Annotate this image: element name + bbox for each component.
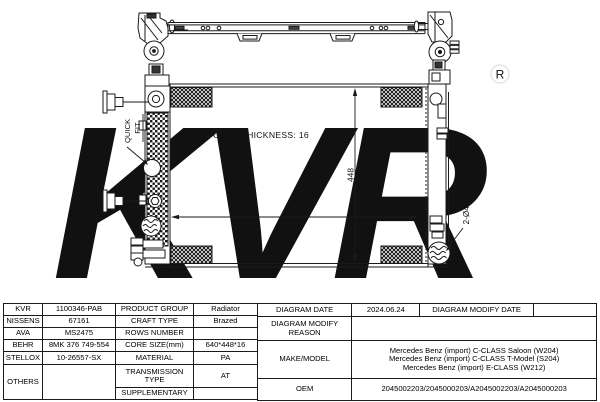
table-row: OEM 2045002203/2045000203/A2045002203/A2…: [258, 379, 597, 401]
left-drain-port: [141, 216, 161, 236]
svg-text:640: 640: [288, 205, 302, 215]
brand-cell: OTHERS: [4, 365, 43, 400]
attr-label-cell: SUPPLEMENTARY: [116, 388, 194, 400]
attr-label-cell: CORE SIZE(mm): [116, 340, 194, 352]
table-row: MAKE/MODEL Mercedes Benz (import) C-CLAS…: [258, 341, 597, 379]
oem-label: OEM: [258, 379, 352, 401]
part-number-cell: 1100346-PAB: [43, 304, 116, 316]
top-view-right-bracket: [414, 12, 459, 63]
svg-text:R: R: [496, 68, 505, 82]
watermark-text: KVR: [52, 82, 487, 302]
top-view-left-bracket: [138, 13, 188, 61]
make-model-label: MAKE/MODEL: [258, 341, 352, 379]
part-number-cell: 67161: [43, 316, 116, 328]
make-model-value: Mercedes Benz (import) C-CLASS Saloon (W…: [352, 341, 597, 379]
radiator-top-view: [138, 12, 459, 63]
brand-cell: AVA: [4, 328, 43, 340]
table-row: NISSENS 67161 CRAFT TYPE Brazed: [4, 316, 258, 328]
core-thickness-label: CORE THICKNESS: 16: [213, 130, 309, 140]
attr-value-cell: [194, 328, 258, 340]
diagram-modify-date-value: [533, 304, 596, 317]
part-number-cell: [43, 365, 116, 400]
table-row: OTHERS TRANSMISSION TYPE AT: [4, 365, 258, 388]
attr-value-cell: PA: [194, 352, 258, 365]
diagram-date-label: DIAGRAM DATE: [258, 304, 352, 317]
svg-text:2-Ø46: 2-Ø46: [462, 201, 471, 224]
attr-label-cell: TRANSMISSION TYPE: [116, 365, 194, 388]
radiator-technical-drawing: KVR R: [0, 0, 600, 302]
attr-label-cell: PRODUCT GROUP: [116, 304, 194, 316]
table-row: DIAGRAM DATE 2024.06.24 DIAGRAM MODIFY D…: [258, 304, 597, 317]
attr-value-cell: 640*448*16: [194, 340, 258, 352]
attr-label-cell: ROWS NUMBER: [116, 328, 194, 340]
spec-table: KVR 1100346-PAB PRODUCT GROUP Radiator N…: [3, 303, 597, 400]
table-row: BEHR 8MK 376 749-554 CORE SIZE(mm) 640*4…: [4, 340, 258, 352]
radiator-spec-sheet: { "watermark": { "brand": "KVR", "regist…: [0, 0, 600, 402]
brand-cell: KVR: [4, 304, 43, 316]
svg-text:448: 448: [346, 168, 356, 182]
right-drain-port: [428, 242, 450, 264]
table-row: AVA MS2475 ROWS NUMBER: [4, 328, 258, 340]
svg-text:FIT: FIT: [133, 122, 142, 134]
diagram-modify-reason-value: [352, 317, 597, 341]
part-number-cell: 10-26557-SX: [43, 352, 116, 365]
attr-value-cell: Brazed: [194, 316, 258, 328]
diagram-modify-date-label: DIAGRAM MODIFY DATE: [420, 304, 533, 317]
make-model-line: Mercedes Benz (import) E-CLASS (W212): [353, 364, 595, 373]
attr-value-cell: AT: [194, 365, 258, 388]
oem-value: 2045002203/2045000203/A2045002203/A20450…: [352, 379, 597, 401]
diagram-modify-reason-label: DIAGRAM MODIFY REASON: [258, 317, 352, 341]
brand-cell: BEHR: [4, 340, 43, 352]
table-row: KVR 1100346-PAB PRODUCT GROUP Radiator: [4, 304, 258, 316]
top-view-cross-bar: [168, 23, 425, 42]
brand-cell: NISSENS: [4, 316, 43, 328]
diagram-info-table: DIAGRAM DATE 2024.06.24 DIAGRAM MODIFY D…: [257, 303, 597, 401]
table-row: DIAGRAM MODIFY REASON: [258, 317, 597, 341]
part-number-cell: 8MK 376 749-554: [43, 340, 116, 352]
attr-label-cell: CRAFT TYPE: [116, 316, 194, 328]
part-number-cell: MS2475: [43, 328, 116, 340]
diagram-date-value: 2024.06.24: [352, 304, 420, 317]
svg-text:QUICK: QUICK: [123, 119, 132, 143]
attr-value-cell: Radiator: [194, 304, 258, 316]
table-row: STELLOX 10-26557-SX MATERIAL PA: [4, 352, 258, 365]
attr-value-cell: [194, 388, 258, 400]
attr-label-cell: MATERIAL: [116, 352, 194, 365]
brand-cell: STELLOX: [4, 352, 43, 365]
cross-reference-table: KVR 1100346-PAB PRODUCT GROUP Radiator N…: [3, 303, 258, 400]
